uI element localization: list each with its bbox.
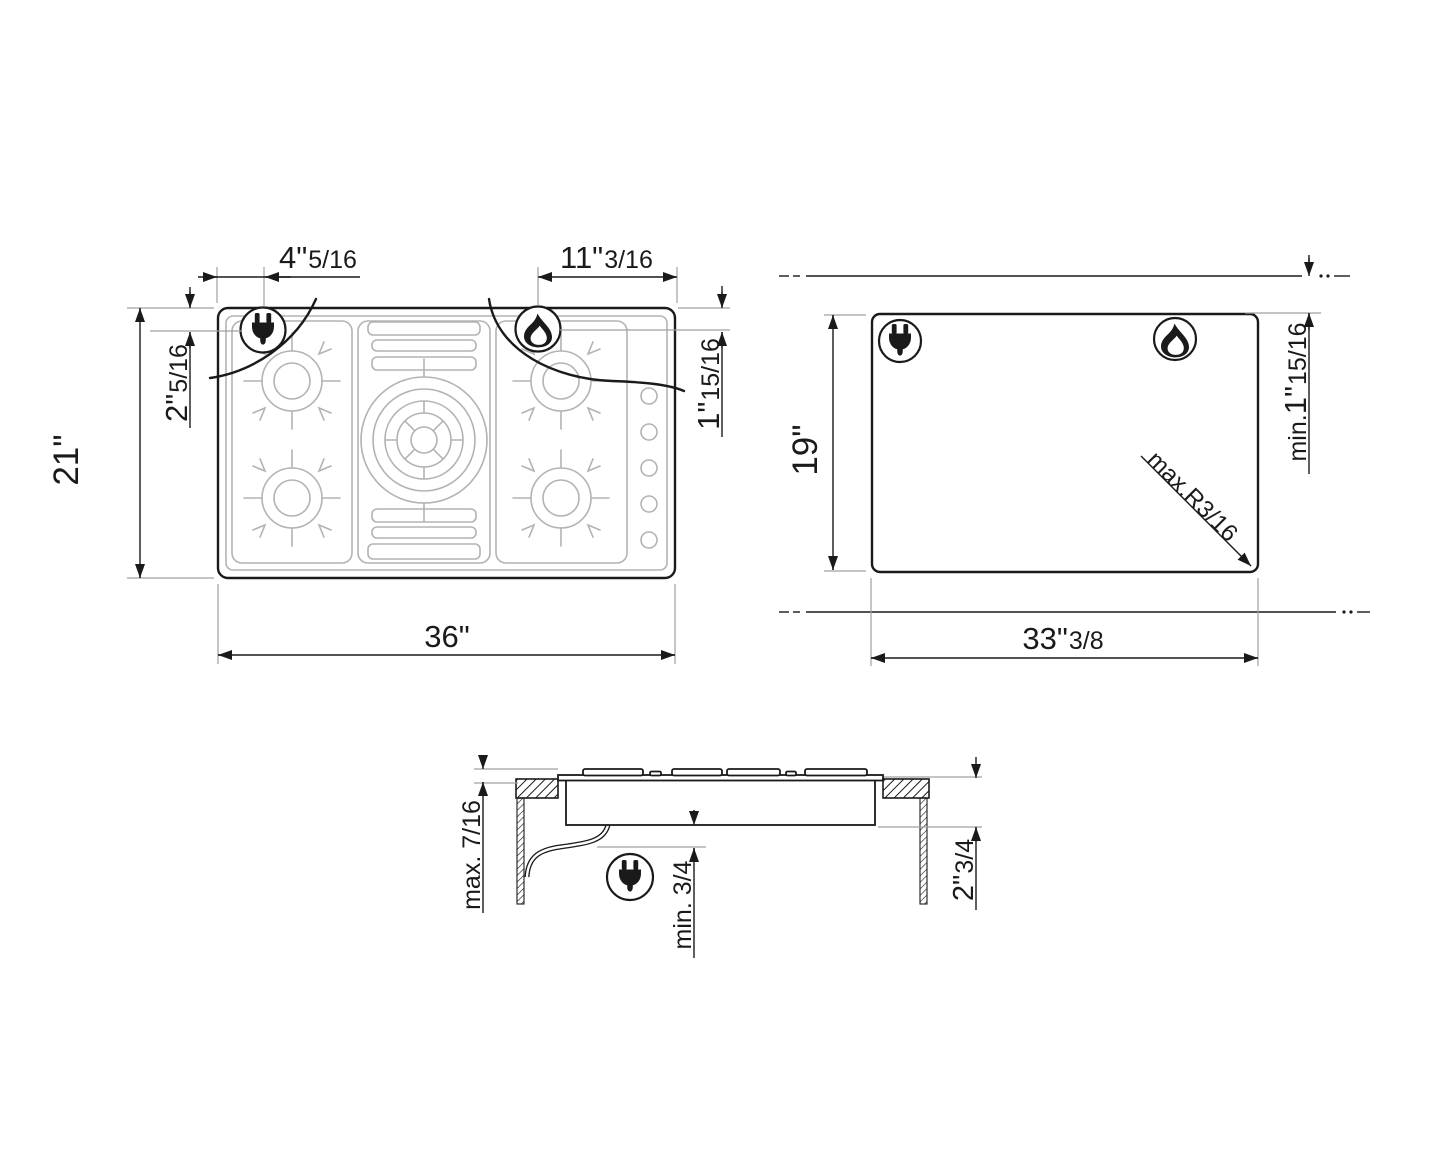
dim-total-height: 21" [47, 308, 140, 578]
dim-top-clearance: min.1"15/16 [1278, 255, 1313, 474]
dim-total-width: 36" [218, 619, 675, 655]
plan-view: 21" 2"5/16 4"5/16 11"3/16 1"15/16 [47, 240, 730, 664]
above-counter-label: max. 7/16 [458, 800, 486, 910]
dim-flame-offset-x: 11"3/16 [538, 240, 677, 277]
body-depth-label: 2"3/4 [948, 839, 980, 901]
gas-flame-icon [516, 307, 561, 352]
top-clearance-label: min.1"15/16 [1278, 322, 1313, 461]
dim-cutout-width: 33"3/8 [871, 621, 1258, 658]
dim-above-counter: max. 7/16 [458, 757, 486, 913]
power-cable [527, 825, 608, 877]
flame-offset-y-label: 1"15/16 [691, 338, 726, 430]
plug-offset-x-label: 4"5/16 [279, 240, 357, 275]
below-clearance-label: min. 3/4 [669, 860, 697, 949]
flame-offset-x-label: 11"3/16 [560, 240, 653, 275]
worktop-edge-bottom [779, 610, 1370, 613]
technical-drawing-page: 21" 2"5/16 4"5/16 11"3/16 1"15/16 [0, 0, 1445, 1156]
power-plug-icon [879, 320, 921, 362]
dim-plug-offset-x: 4"5/16 [198, 240, 360, 277]
cutout-height-label: 19" [786, 424, 825, 475]
dim-cutout-height: 19" [786, 315, 833, 570]
cooktop-body [566, 780, 875, 825]
plug-offset-y-label: 2"5/16 [159, 344, 194, 422]
power-plug-icon [607, 854, 653, 900]
cutout-view: 19" min.1"15/16 max.R3/16 33"3/8 [779, 255, 1370, 666]
dim-below-clearance: min. 3/4 [669, 810, 697, 958]
total-width-label: 36" [424, 619, 470, 654]
cooktop-installation-diagram: 21" 2"5/16 4"5/16 11"3/16 1"15/16 [0, 0, 1445, 1156]
side-view: max. 7/16 min. 3/4 2"3/4 [458, 757, 982, 958]
dim-body-depth: 2"3/4 [948, 757, 980, 910]
gas-flame-icon [1154, 318, 1196, 360]
worktop-edge-top [779, 274, 1350, 277]
dim-flame-offset-y: 1"15/16 [691, 286, 726, 437]
power-plug-icon [241, 308, 286, 353]
cutout-outline [872, 314, 1258, 572]
cutout-width-label: 33"3/8 [1022, 621, 1103, 656]
total-height-label: 21" [47, 434, 86, 485]
